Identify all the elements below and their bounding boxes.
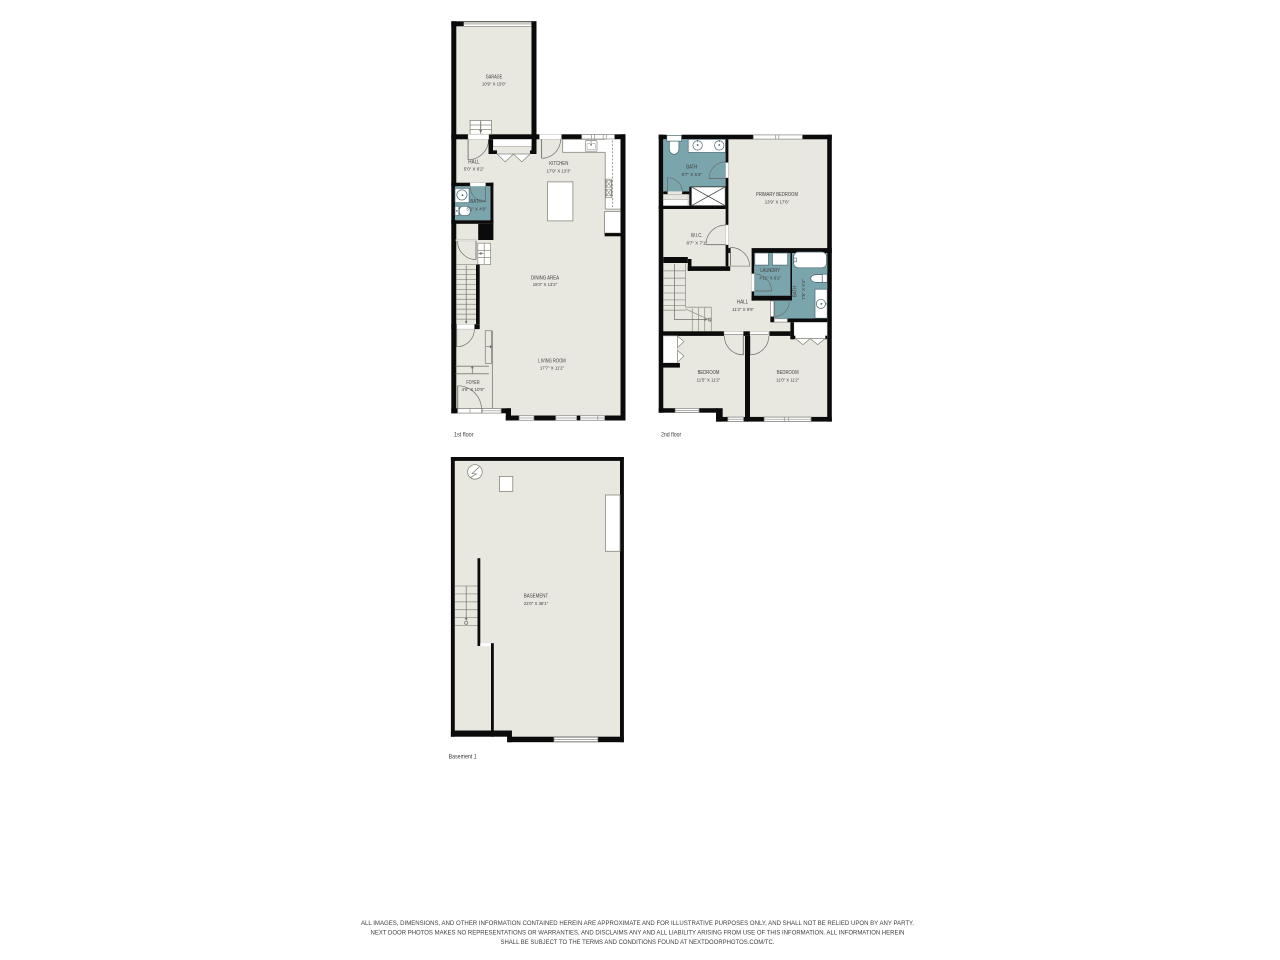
svg-text:NEXT DOOR PHOTOS MAKES NO REPR: NEXT DOOR PHOTOS MAKES NO REPRESENTATION… xyxy=(371,929,905,936)
svg-text:4'9" X 10'9": 4'9" X 10'9" xyxy=(462,387,485,393)
svg-text:W.I.C.: W.I.C. xyxy=(691,233,703,239)
svg-text:BATH: BATH xyxy=(793,286,799,298)
svg-text:22'0" X 38'1": 22'0" X 38'1" xyxy=(524,601,549,607)
svg-text:FOYER: FOYER xyxy=(466,380,480,386)
svg-text:BATH: BATH xyxy=(470,199,482,205)
svg-text:SHALL BE SUBJECT TO THE TERMS: SHALL BE SUBJECT TO THE TERMS AND CONDIT… xyxy=(501,939,775,946)
svg-text:11'5" X 11'2": 11'5" X 11'2" xyxy=(697,377,721,383)
svg-text:11'0" X 11'2": 11'0" X 11'2" xyxy=(776,377,799,383)
svg-text:5'0" X 6'2": 5'0" X 6'2" xyxy=(464,167,485,173)
svg-text:BEDROOM: BEDROOM xyxy=(777,370,799,376)
svg-text:BASEMENT: BASEMENT xyxy=(524,593,548,599)
svg-text:13'9" X 17'6": 13'9" X 17'6" xyxy=(765,199,790,205)
svg-text:KITCHEN: KITCHEN xyxy=(549,161,569,167)
svg-text:LAUNDRY: LAUNDRY xyxy=(760,268,780,274)
svg-text:BEDROOM: BEDROOM xyxy=(698,370,720,376)
svg-text:11'2" X 9'6": 11'2" X 9'6" xyxy=(732,307,754,313)
svg-text:LIVING ROOM: LIVING ROOM xyxy=(538,358,565,364)
svg-text:BATH: BATH xyxy=(686,165,698,171)
svg-text:5'1" X 4'9": 5'1" X 4'9" xyxy=(467,206,487,212)
svg-text:1st floor: 1st floor xyxy=(454,432,474,439)
svg-text:GARAGE: GARAGE xyxy=(486,74,503,80)
svg-text:HALL: HALL xyxy=(737,300,749,306)
svg-text:ALL IMAGES, DIMENSIONS, AND OT: ALL IMAGES, DIMENSIONS, AND OTHER INFORM… xyxy=(361,920,914,927)
svg-text:Basement 1: Basement 1 xyxy=(449,754,478,761)
svg-text:17'9" X 13'3": 17'9" X 13'3" xyxy=(547,168,572,174)
svg-text:8'7" X 7'1": 8'7" X 7'1" xyxy=(686,240,707,246)
svg-text:7'6" X 9'4": 7'6" X 9'4" xyxy=(801,279,807,300)
svg-text:19'3" X 13'2": 19'3" X 13'2" xyxy=(533,282,558,288)
svg-text:PRIMARY BEDROOM: PRIMARY BEDROOM xyxy=(756,192,798,198)
svg-text:2nd floor: 2nd floor xyxy=(661,432,681,439)
svg-text:8'7" X 5'4": 8'7" X 5'4" xyxy=(682,172,703,178)
svg-text:DINING AREA: DINING AREA xyxy=(531,275,560,281)
svg-text:HALL: HALL xyxy=(468,159,480,165)
svg-text:17'7" X 11'2": 17'7" X 11'2" xyxy=(540,366,565,372)
svg-text:10'9" X 15'0": 10'9" X 15'0" xyxy=(482,82,506,88)
svg-text:4'11" X 6'2": 4'11" X 6'2" xyxy=(759,275,781,281)
